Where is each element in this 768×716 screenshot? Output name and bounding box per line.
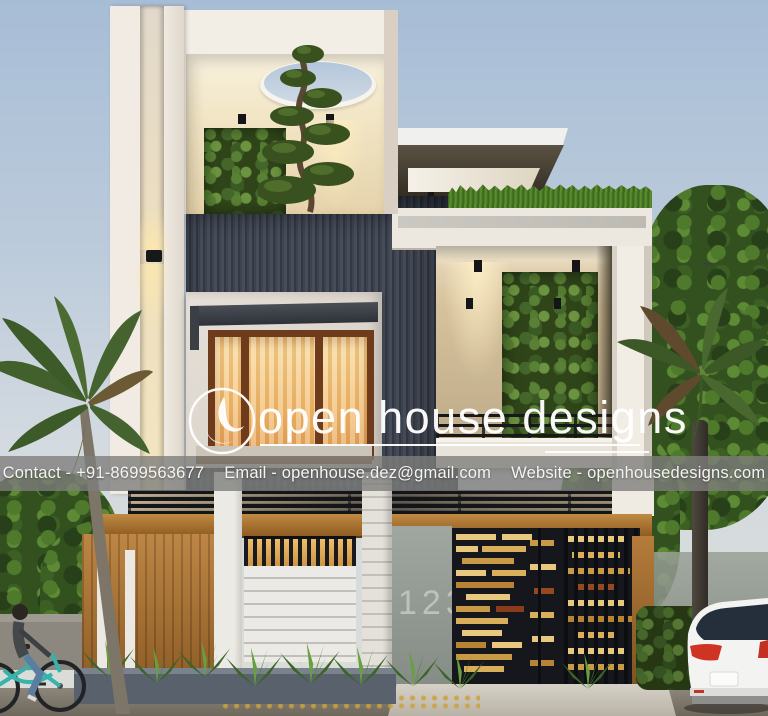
contact-info-bar: Contact - +91-8699563677 Email - openhou… [0, 456, 768, 491]
sconce-up-glow [136, 206, 170, 250]
fascia-recessed-stripe [398, 216, 646, 228]
watermark-brand-text: open house designs [258, 392, 688, 444]
watermark-underline [260, 444, 640, 446]
window-canopy [190, 302, 378, 326]
agave-shrub [432, 652, 488, 692]
ceiling-downlight-icon [466, 298, 473, 309]
contact-email-text: Email - openhouse.dez@gmail.com [224, 464, 491, 483]
cyclist-on-bicycle [0, 572, 98, 716]
ceiling-downlight-icon [572, 260, 580, 272]
lit-slat-screen [244, 536, 356, 569]
wall-sconce-icon [146, 250, 162, 262]
architectural-render-scene: 123 [0, 0, 768, 716]
contact-website-text: Website - openhousedesigns.com [511, 464, 765, 483]
bonsai-tree [258, 34, 362, 214]
ceiling-downlight-icon [554, 298, 561, 309]
open-house-designs-logo-circle-icon [186, 385, 258, 457]
canopy-bracket [190, 306, 199, 350]
balcony-fascia-band [392, 208, 652, 250]
bird-icon [700, 260, 714, 268]
box-right-face [384, 10, 398, 214]
ceiling-downlight-icon [474, 260, 482, 272]
agave-shrub [224, 646, 286, 690]
contact-phone-text: Contact - +91-8699563677 [3, 464, 205, 483]
upper-roof-slab [388, 128, 568, 146]
ceiling-downlight-icon [238, 114, 246, 124]
balcony-ceiling-shadow [436, 246, 614, 260]
agave-shrub [560, 652, 616, 692]
watermark-underline-short [545, 451, 649, 453]
white-suv-car [680, 588, 768, 716]
agave-shrub [330, 644, 392, 690]
